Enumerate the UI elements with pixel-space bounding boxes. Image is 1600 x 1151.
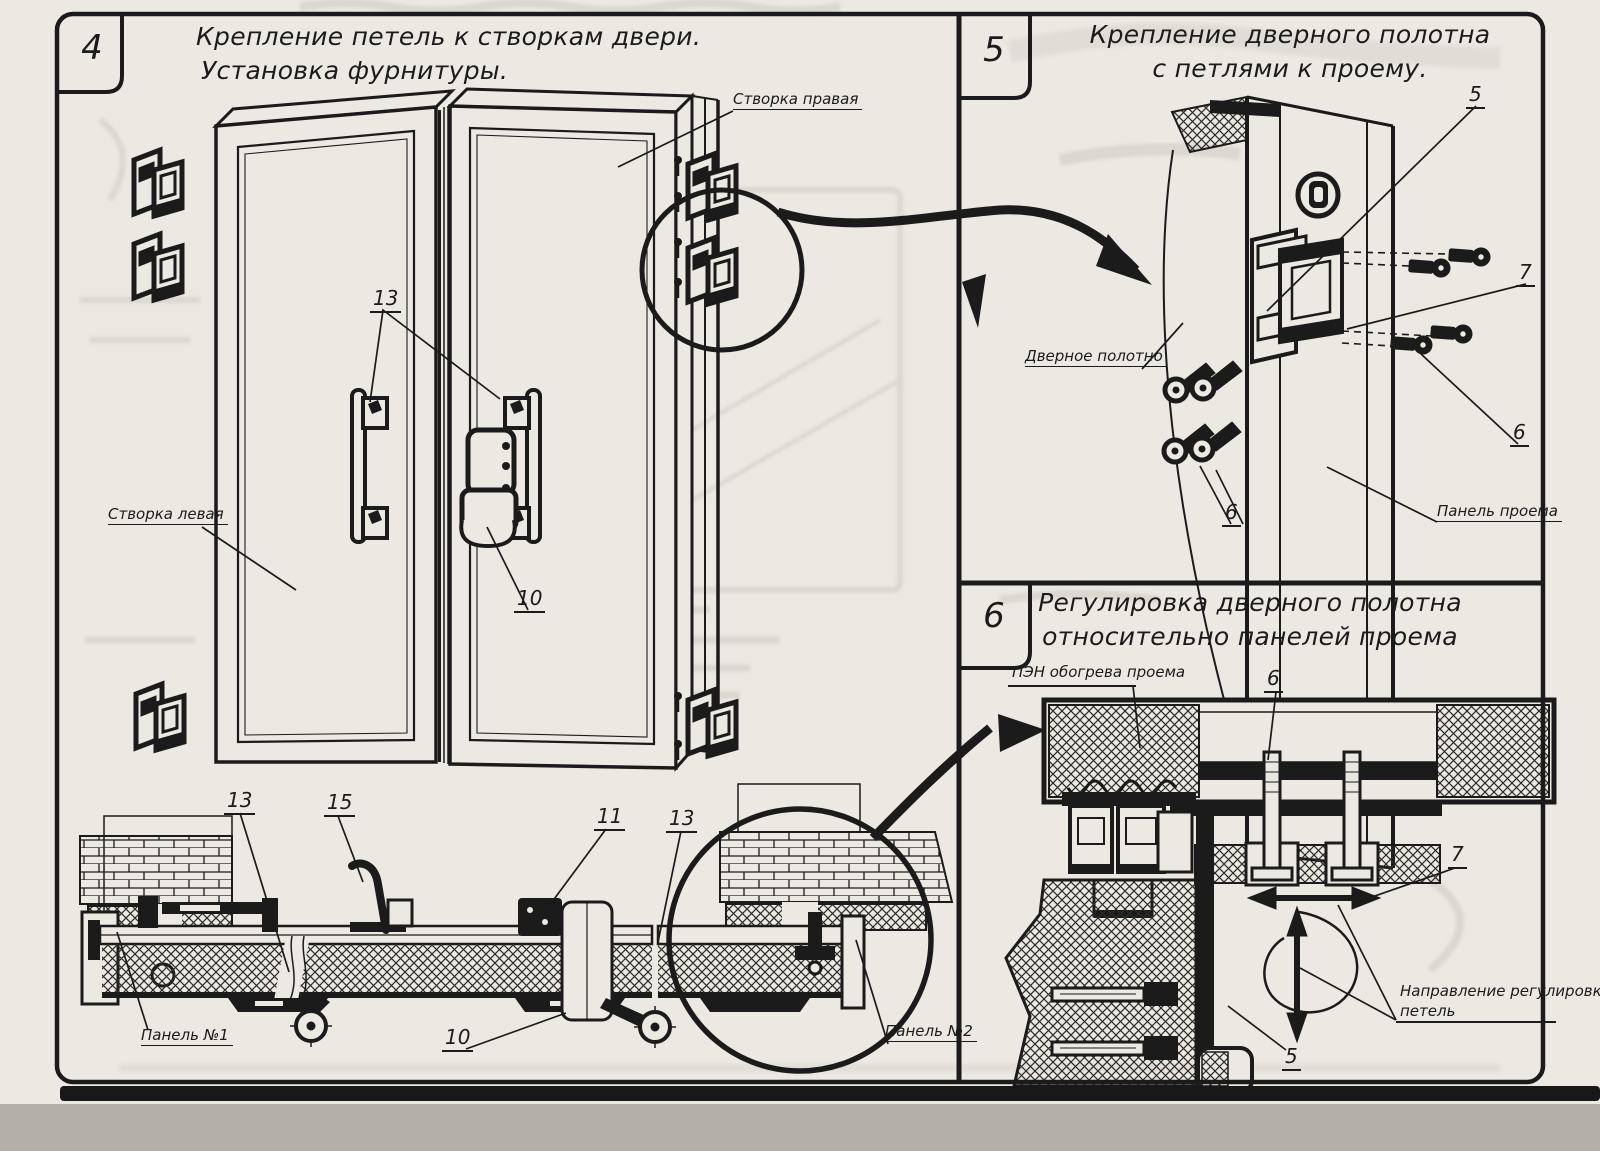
- label-right-leaf: Створка правая: [733, 90, 862, 110]
- drawing-sheet: 4 5 6 Крепление петель к створкам двери.…: [0, 0, 1600, 1151]
- callout-6-screws-left: 6: [1222, 500, 1241, 527]
- p5-title-line2: с петлями к проему.: [1040, 54, 1540, 83]
- callout-7-pin-p6: 7: [1448, 842, 1467, 869]
- callout-15-bracket: 15: [324, 790, 355, 817]
- p5-handle-hole: [1298, 174, 1338, 216]
- p4-left-leaf: [216, 91, 452, 762]
- p5-number: 5: [972, 30, 1016, 70]
- p4-title-line1: Крепление петель к створкам двери.: [196, 22, 701, 51]
- label-panel-1: Панель №1: [141, 1026, 233, 1046]
- callout-13-handles: 13: [370, 286, 401, 313]
- label-heater: ПЭН обогрева проема: [1012, 663, 1185, 681]
- scan-edge-bar: [60, 1086, 1600, 1101]
- callout-10-lock: 10: [514, 586, 545, 613]
- line-art: [0, 0, 1600, 1151]
- callout-5-hinge-p6: 5: [1282, 1044, 1301, 1071]
- label-door-leaf: Дверное полотно: [1025, 347, 1167, 367]
- label-direction-line2: петель: [1400, 1002, 1455, 1020]
- label-opening-panel: Панель проема: [1437, 502, 1562, 522]
- p6-title-line1: Регулировка дверного полотна: [1000, 588, 1500, 617]
- p6-title-line2: относительно панелей проема: [1000, 622, 1500, 651]
- label-left-leaf: Створка левая: [108, 505, 228, 525]
- p4-number: 4: [70, 28, 114, 68]
- p5-title-line1: Крепление дверного полотна: [1040, 20, 1540, 49]
- callout-6-bolt: 6: [1264, 666, 1283, 693]
- callout-7-pin: 7: [1516, 260, 1535, 287]
- label-direction-line1: Направление регулировки: [1400, 982, 1600, 1000]
- label-panel-2: Панель №2: [885, 1022, 977, 1042]
- callout-5-hinge: 5: [1466, 82, 1485, 109]
- callout-6-screws-right: 6: [1510, 420, 1529, 447]
- p4-title-line2: Установка фурнитуры.: [201, 56, 508, 85]
- callout-13-section-right: 13: [666, 806, 697, 833]
- callout-10-bottom: 10: [442, 1025, 473, 1052]
- callout-11-lock-section: 11: [594, 804, 625, 831]
- callout-13-section-left: 13: [224, 788, 255, 815]
